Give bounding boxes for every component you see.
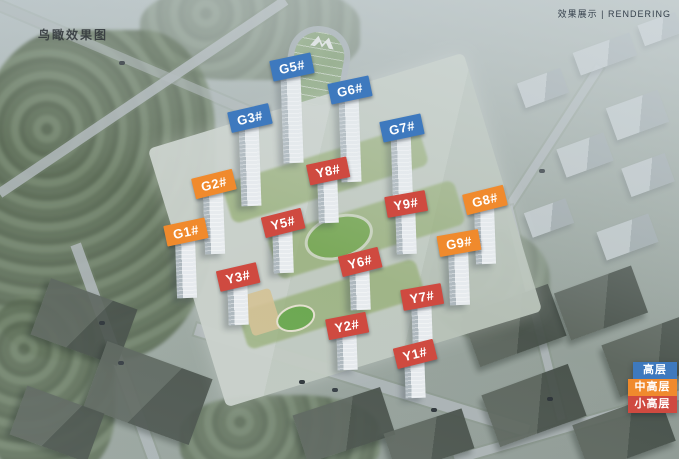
legend-item-中高层: 中高层 [628,379,677,396]
stadium-logo-icon [310,35,336,50]
header-caption: 效果展示 | RENDERING [558,7,671,20]
legend-item-高层: 高层 [633,362,677,379]
building-tower-G9 [448,247,470,306]
building-tower-G5 [280,71,303,164]
legend-item-小高层: 小高层 [628,396,677,413]
legend: 高层中高层小高层 [628,362,678,413]
building-tower-G2 [203,188,225,255]
page-title: 鸟瞰效果图 [38,26,108,43]
aerial-rendering: G5#G6#G3#G7#G2#G1#G8#G9#Y8#Y9#Y5#Y6#Y3#Y… [0,0,679,459]
cars-on-roads [0,0,4,2]
building-tower-G3 [239,122,262,207]
building-tower-G1 [175,236,197,299]
